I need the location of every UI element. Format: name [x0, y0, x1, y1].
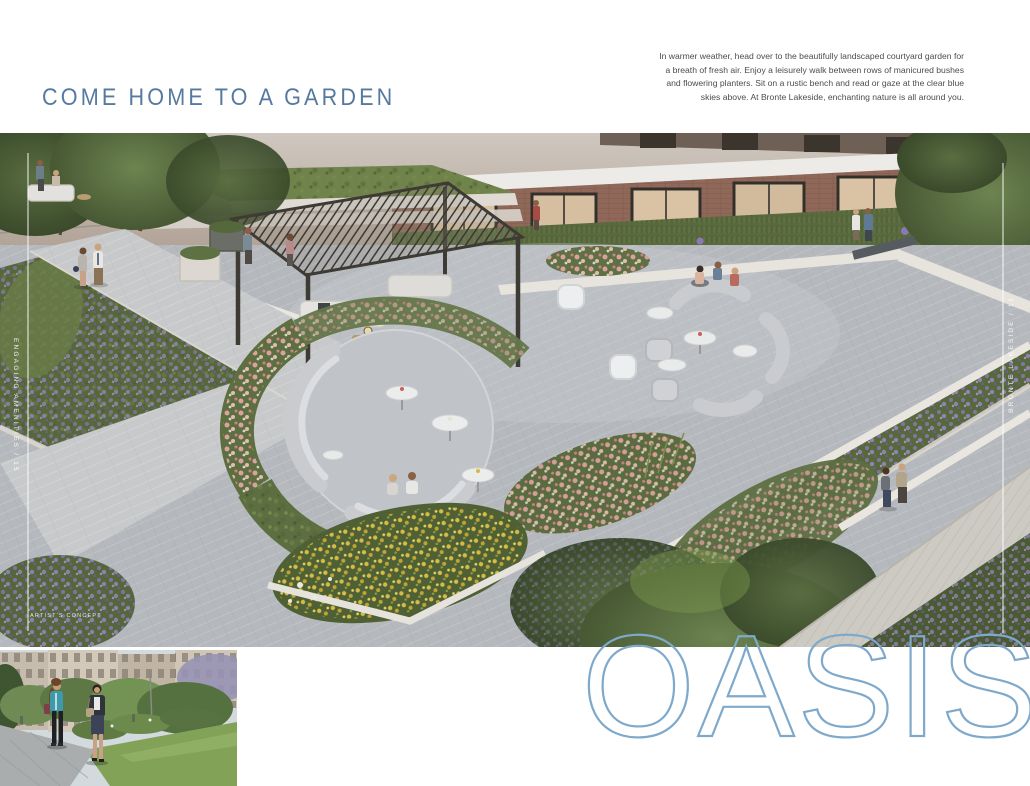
intro-line: a breath of fresh air. Enjoy a leisurely… — [544, 64, 964, 78]
right-edge-label: BRONTE LAKESIDE / 11 — [1008, 296, 1015, 413]
page-title: COME HOME TO A GARDEN — [42, 84, 395, 112]
park-photo-image — [0, 650, 237, 786]
oasis-text: OASIS — [582, 616, 1030, 762]
park-photo — [0, 650, 237, 786]
intro-line: and flowering planters. Sit on a rustic … — [544, 77, 964, 91]
intro-line: In warmer weather, head over to the beau… — [544, 50, 964, 64]
courtyard-rendering-image — [0, 133, 1030, 647]
brochure-page: COME HOME TO A GARDEN In warmer weather,… — [0, 0, 1030, 786]
oasis-wordmark: OASIS — [582, 616, 1030, 762]
courtyard-rendering — [0, 133, 1030, 647]
artists-concept-caption: ARTIST'S CONCEPT — [30, 613, 102, 619]
intro-paragraph: In warmer weather, head over to the beau… — [544, 50, 964, 104]
oasis-wordmark-text: OASIS — [582, 616, 1030, 762]
intro-line: skies above. At Bronte Lakeside, enchant… — [544, 91, 964, 105]
left-edge-label: ENGAGING AMENITIES / 15 — [12, 338, 19, 473]
